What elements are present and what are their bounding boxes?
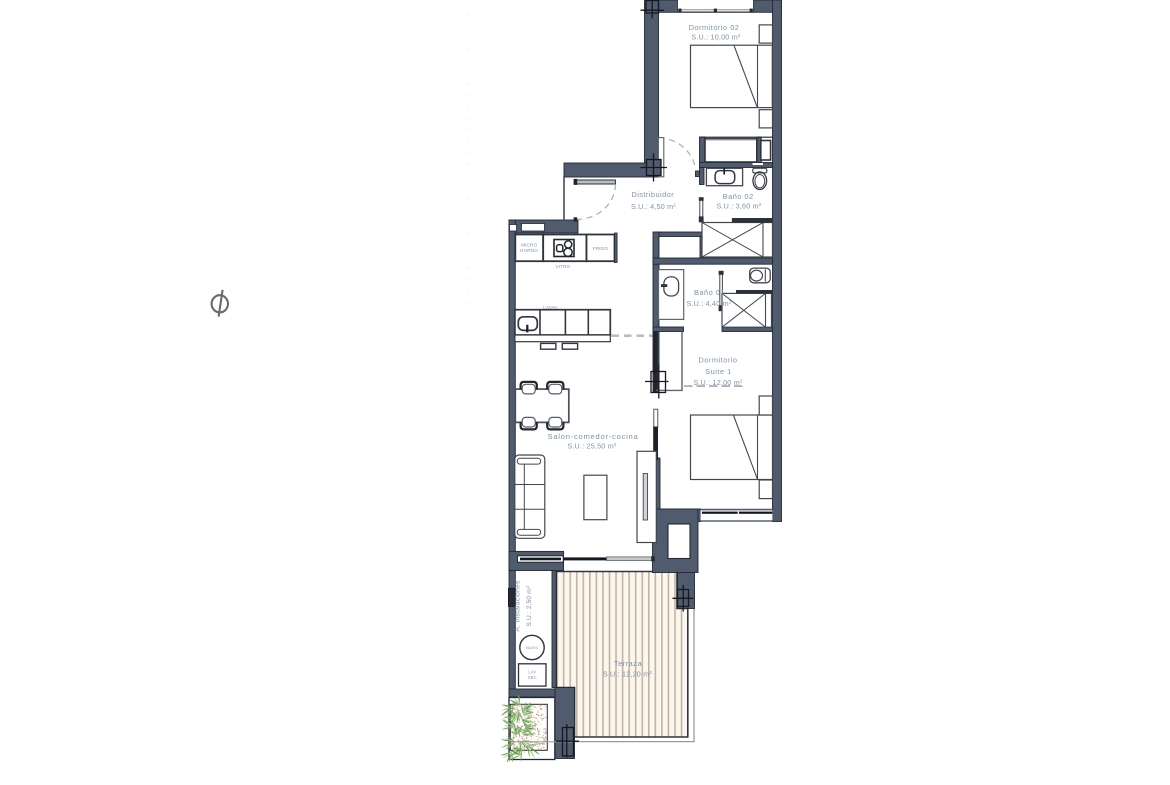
- svg-text:Baño 01: Baño 01: [694, 288, 725, 297]
- svg-text:FRIGO: FRIGO: [593, 246, 609, 251]
- svg-text:HORNO: HORNO: [520, 248, 538, 253]
- svg-text:MICRO: MICRO: [521, 242, 537, 247]
- svg-text:S.U.: 10,00 m2: S.U.: 10,00 m2: [691, 33, 741, 42]
- svg-text:Terraza: Terraza: [614, 659, 643, 668]
- svg-text:A. Instalaciones: A. Instalaciones: [515, 580, 522, 632]
- svg-text:Dormitorio 02: Dormitorio 02: [689, 23, 740, 32]
- svg-text:Baño 02: Baño 02: [723, 192, 754, 201]
- svg-text:NUOS: NUOS: [526, 645, 538, 650]
- svg-text:Distribuidor: Distribuidor: [631, 190, 674, 199]
- svg-text:Salon-comedor-cocina: Salon-comedor-cocina: [548, 432, 639, 441]
- svg-text:LAV: LAV: [528, 669, 536, 674]
- svg-text:LAVAV.: LAVAV.: [543, 305, 559, 310]
- svg-text:S.U.: 2,50 m2: S.U.: 2,50 m2: [525, 585, 533, 626]
- svg-text:VITRO: VITRO: [555, 264, 570, 269]
- svg-text:S.U.: 3,60 m2: S.U.: 3,60 m2: [716, 201, 761, 210]
- svg-text:Suite 1: Suite 1: [705, 367, 732, 376]
- svg-text:Dormitorio: Dormitorio: [698, 356, 737, 365]
- svg-text:S.U.: 4,50 m2: S.U.: 4,50 m2: [631, 202, 676, 211]
- svg-text:S.U.: 25,50 m2: S.U.: 25,50 m2: [567, 442, 617, 451]
- svg-text:S.U.: 4,40 m2: S.U.: 4,40 m2: [686, 299, 731, 308]
- svg-text:SEC: SEC: [528, 675, 537, 680]
- svg-text:S.U.: 12,20 m2: S.U.: 12,20 m2: [603, 670, 653, 679]
